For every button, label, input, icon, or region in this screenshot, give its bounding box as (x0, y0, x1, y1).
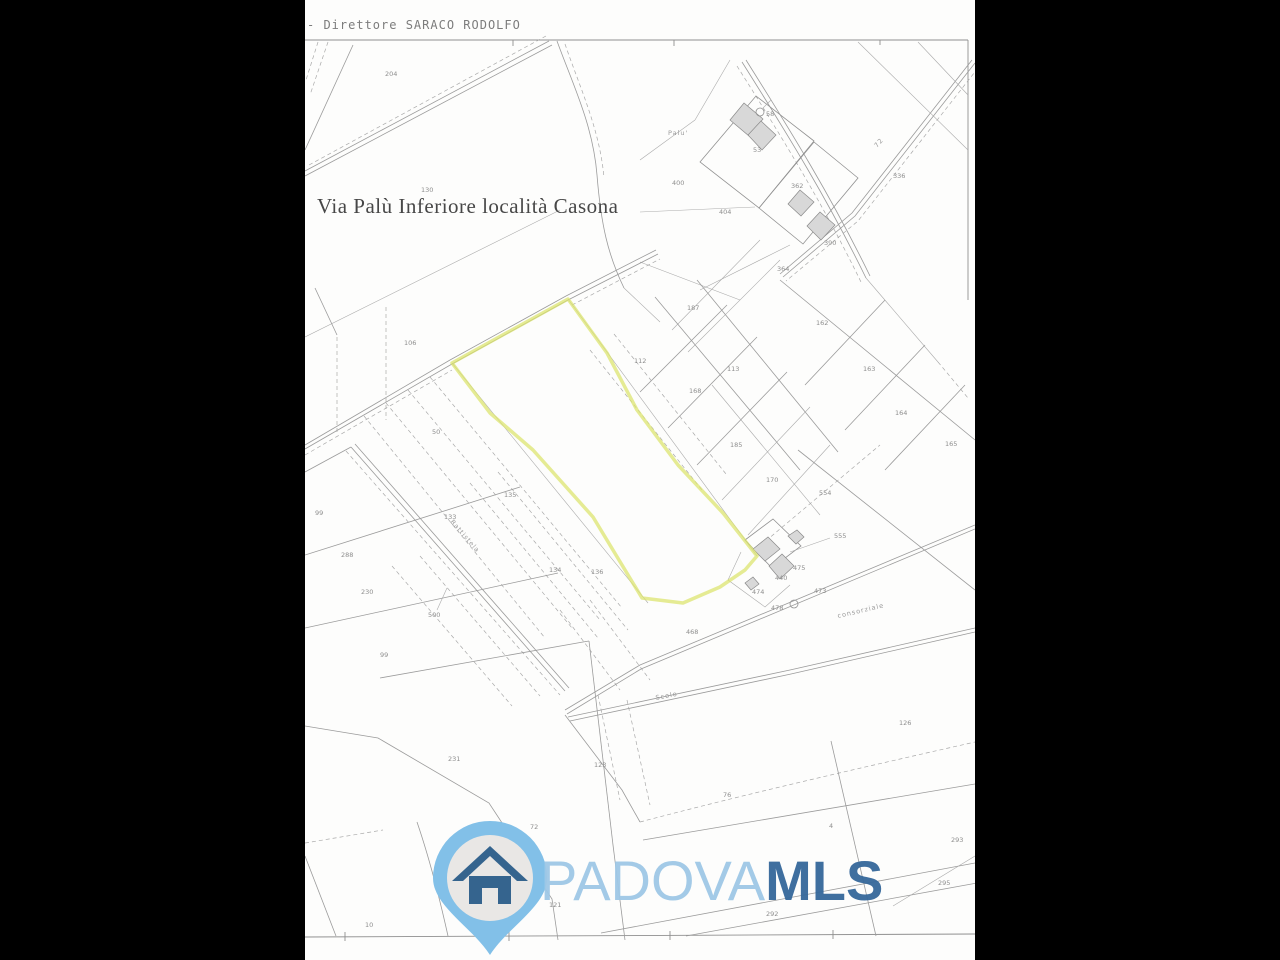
parcel-number: 4 (829, 822, 833, 830)
parcel-lines-west (305, 444, 569, 706)
parcel-number: 390 (824, 239, 836, 247)
parcel-number: 130 (421, 186, 433, 194)
parcel-lines-center (640, 260, 838, 535)
parcel-number: 164 (895, 409, 907, 417)
parcel-number: 555 (834, 532, 846, 540)
parcel-number: 288 (341, 551, 353, 559)
map-title: Via Palù Inferiore località Casona (317, 194, 618, 219)
place-name: 72 (873, 136, 886, 149)
parcel-number: 231 (448, 755, 460, 763)
parcel-number: 10 (365, 921, 373, 929)
parcel-number: 468 (686, 628, 698, 636)
parcel-number: 76 (723, 791, 731, 799)
parcel-number: 400 (672, 179, 684, 187)
parcel-number: 126 (899, 719, 911, 727)
parcel-number: 136 (591, 568, 603, 576)
parcel-number: 135 (504, 491, 516, 499)
parcel-number: 106 (404, 339, 416, 347)
parcel-number: 53 (753, 146, 761, 154)
parcel-number: 473 (814, 587, 826, 595)
parcel-number: 112 (634, 357, 646, 365)
parcel-lines-east (755, 280, 975, 590)
padovamls-logo-pin (425, 815, 555, 960)
place-name: Battistela (448, 518, 481, 554)
cadastral-map: 2041304004045358362390364336187112113162… (305, 0, 975, 960)
parcel-number: 500 (428, 611, 440, 619)
parcel-number: 58 (766, 110, 774, 118)
parcel-number: 295 (938, 879, 950, 887)
highlighted-parcel (452, 299, 757, 603)
parcel-number: 204 (385, 70, 397, 78)
parcel-number: 474 (752, 588, 764, 596)
parcel-lines-topleft (305, 36, 660, 433)
brand-mls: MLS (765, 849, 883, 912)
parcel-number: 293 (951, 836, 963, 844)
parcel-number: 113 (727, 365, 739, 373)
parcel-number: 364 (777, 265, 789, 273)
parcel-number: 134 (549, 566, 561, 574)
parcel-number: 99 (380, 651, 388, 659)
padovamls-logo-text: PADOVAMLS (540, 853, 883, 909)
map-pin-house-icon (433, 821, 547, 955)
parcel-number: 475 (793, 564, 805, 572)
parcel-number: 168 (689, 387, 701, 395)
parcel-number: 478 (771, 604, 783, 612)
parcel-number: 163 (863, 365, 875, 373)
field-strips (305, 250, 757, 690)
farm-buildings-north (700, 96, 858, 244)
document-header: - Direttore SARACO RODOLFO (307, 18, 521, 32)
brand-padova: PADOVA (540, 849, 765, 912)
well-symbol (756, 108, 764, 116)
parcel-number: 123 (594, 761, 606, 769)
map-frame (305, 40, 975, 941)
parcel-number: 230 (361, 588, 373, 596)
parcel-number: 187 (687, 304, 699, 312)
parcel-number: 440 (775, 574, 787, 582)
screenshot-stage: 2041304004045358362390364336187112113162… (0, 0, 1280, 960)
parcel-number: 554 (819, 489, 831, 497)
parcel-number: 362 (791, 182, 803, 190)
parcel-number: 50 (432, 428, 440, 436)
place-name: Palu' (668, 129, 688, 137)
parcel-number: 162 (816, 319, 828, 327)
parcel-number: 185 (730, 441, 742, 449)
place-name: consorziale (837, 601, 885, 620)
parcel-number: 336 (893, 172, 905, 180)
parcel-lines-topright (640, 42, 975, 398)
parcel-number: 170 (766, 476, 778, 484)
parcel-number: 99 (315, 509, 323, 517)
parcel-number: 404 (719, 208, 731, 216)
map-page: 2041304004045358362390364336187112113162… (305, 0, 975, 960)
parcel-number: 165 (945, 440, 957, 448)
